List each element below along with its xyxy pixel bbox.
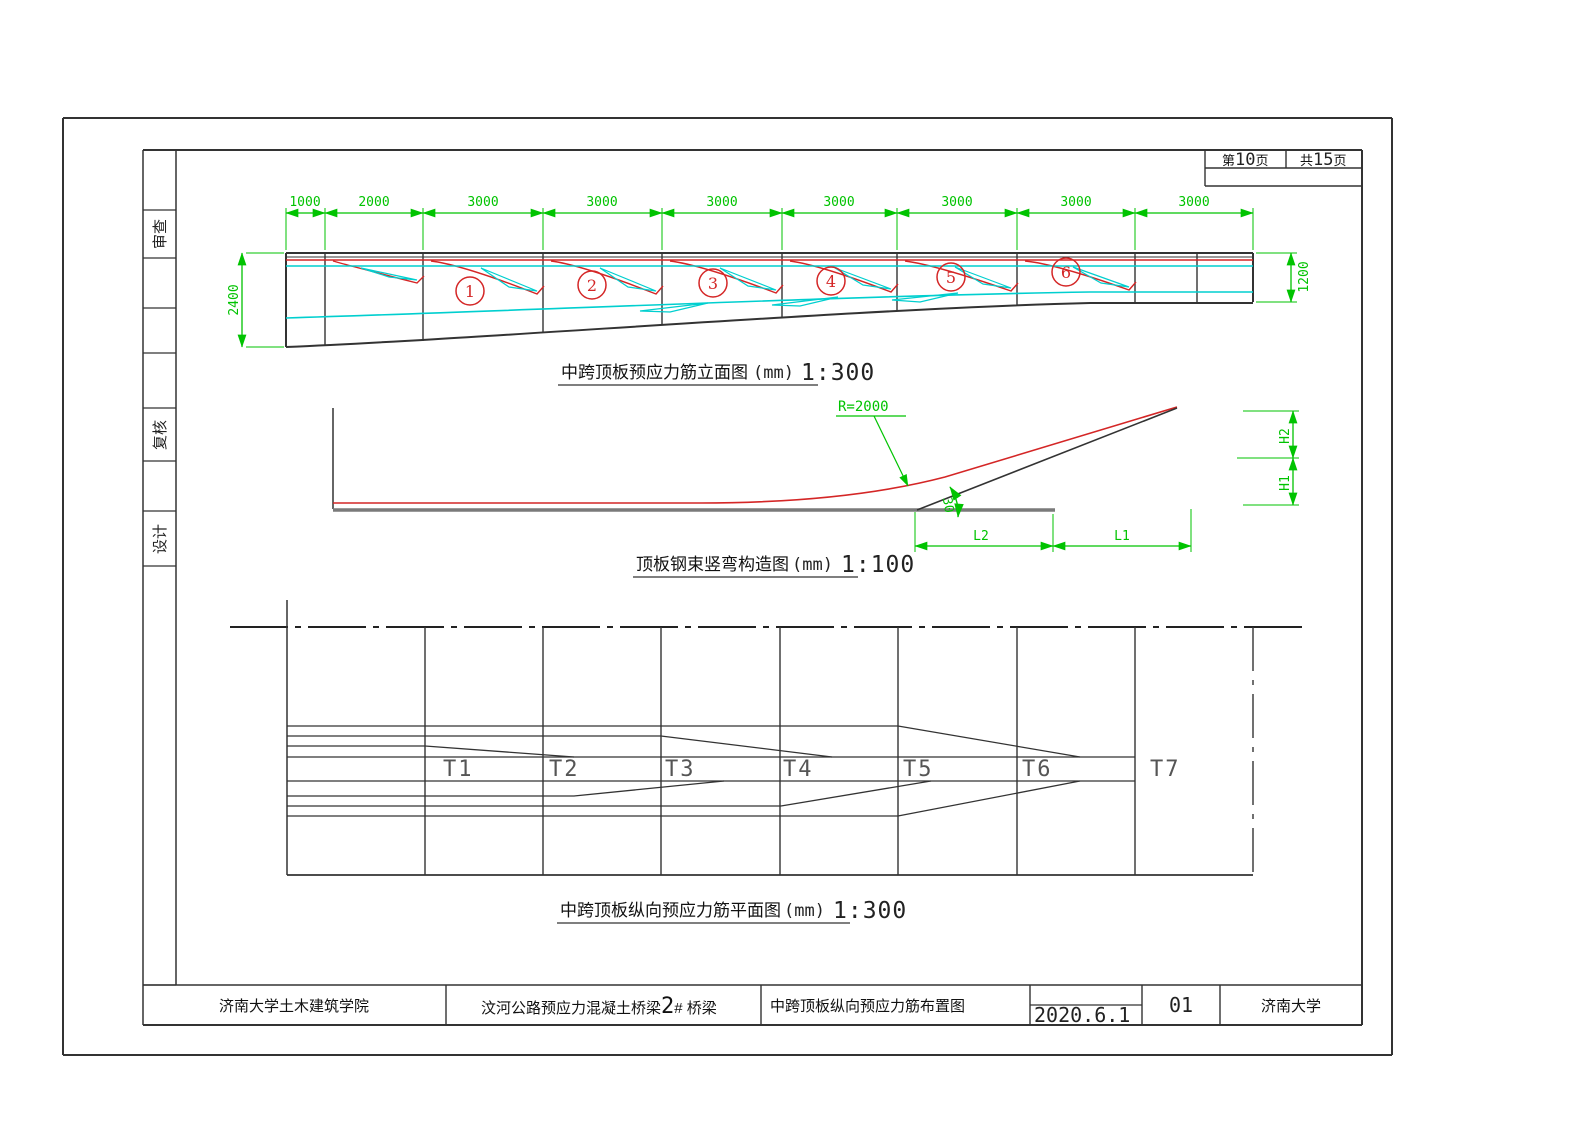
tendon-label-t2: T2	[549, 757, 580, 782]
caption-unit: (mm)	[792, 555, 833, 575]
dim-label: 3000	[706, 195, 737, 210]
dim-label: 1000	[289, 195, 320, 210]
tangent-line	[917, 408, 1177, 510]
dim-label-l1: L1	[1114, 529, 1130, 544]
caption-text: 顶板钢束竖弯构造图	[636, 555, 789, 574]
dim-label: 3000	[941, 195, 972, 210]
caption-scale: 1:300	[833, 898, 907, 924]
page-number: 第10页	[1222, 150, 1269, 170]
sheet-number: 01	[1169, 993, 1193, 1017]
cad-sheet: 审查 复核 设计 第10页 共15页	[0, 0, 1588, 1122]
svg-text:2: 2	[587, 276, 597, 295]
caption-scale: 1:100	[841, 552, 915, 578]
plan-caption: 中跨顶板纵向预应力筋平面图 (mm) 1:300	[557, 898, 907, 924]
svg-text:5: 5	[946, 268, 956, 287]
dim-label: 3000	[1178, 195, 1209, 210]
dim-label-l2: L2	[973, 529, 989, 544]
tendon-label-t5: T5	[903, 757, 934, 782]
tendon-number-1: 1	[456, 277, 484, 305]
tendon-number-callouts: 1 2 3 4 5 6	[456, 258, 1080, 305]
plan-tendon-lines	[287, 726, 1135, 816]
caption-text: 中跨顶板纵向预应力筋平面图	[560, 901, 781, 920]
h-dimensions: H2 H1	[1237, 411, 1299, 505]
date-value: 2020.6.1	[1034, 1003, 1130, 1027]
tendon-label-t4: T4	[783, 757, 814, 782]
project-name: 汶河公路预应力混凝土桥梁2# 桥梁	[481, 994, 717, 1019]
tendon-number-2: 2	[578, 271, 606, 299]
signature-strip: 审查 复核 设计	[143, 150, 176, 985]
caption-scale: 1:300	[801, 360, 875, 386]
side-label-design: 设计	[152, 524, 169, 554]
tendon-label-t6: T6	[1022, 757, 1053, 782]
drawing-canvas: 审查 复核 设计 第10页 共15页	[0, 0, 1588, 1122]
caption-unit: (mm)	[753, 363, 794, 383]
beam-outline	[286, 253, 1253, 347]
angle-label: 30	[939, 496, 956, 514]
elevation-dim-left: 2400	[227, 253, 284, 347]
l-dimensions: L2 L1	[915, 509, 1191, 552]
tendon-label-t3: T3	[665, 757, 696, 782]
dim-label-height-right: 1200	[1297, 261, 1312, 292]
caption-unit: (mm)	[784, 901, 825, 921]
organization-name: 济南大学土木建筑学院	[219, 997, 369, 1015]
dim-label: 3000	[823, 195, 854, 210]
university-name: 济南大学	[1261, 998, 1321, 1015]
total-pages: 共15页	[1300, 150, 1347, 170]
plan-view: T1 T2 T3 T4 T5 T6 T7 中跨顶板纵向预应力筋平面图 (mm) …	[230, 600, 1308, 924]
dim-label-h2: H2	[1278, 428, 1293, 444]
elevation-dim-right: 1200	[1256, 253, 1312, 302]
svg-text:6: 6	[1061, 263, 1071, 282]
bend-detail-view: 30 R=2000 H2 H1 L2 L1 顶板钢束竖弯构造图 (mm)	[333, 399, 1299, 578]
radius-label: R=2000	[838, 399, 889, 415]
dim-label: 2000	[358, 195, 389, 210]
dim-label-height-left: 2400	[227, 284, 242, 315]
page-number-block: 第10页 共15页	[1205, 150, 1362, 186]
tendon-label-t1: T1	[443, 757, 474, 782]
svg-text:1: 1	[465, 282, 475, 301]
title-block: 济南大学土木建筑学院 汶河公路预应力混凝土桥梁2# 桥梁 中跨顶板纵向预应力筋布…	[143, 985, 1362, 1027]
elevation-caption: 中跨顶板预应力筋立面图 (mm) 1:300	[558, 360, 875, 386]
tendon-profile-red	[333, 407, 1177, 503]
tendon-number-3: 3	[699, 269, 727, 297]
dim-label: 3000	[467, 195, 498, 210]
dim-label: 3000	[1060, 195, 1091, 210]
svg-text:4: 4	[826, 272, 836, 291]
elevation-view: 1000 2000 3000 3000 3000 3000 3000 3000 …	[227, 195, 1312, 386]
svg-text:3: 3	[708, 274, 718, 293]
plan-tendon-labels: T1 T2 T3 T4 T5 T6 T7	[443, 757, 1181, 782]
bend-detail-caption: 顶板钢束竖弯构造图 (mm) 1:100	[633, 552, 915, 578]
dim-label: 3000	[586, 195, 617, 210]
dim-label-h1: H1	[1278, 475, 1293, 491]
tendon-number-4: 4	[817, 267, 845, 295]
side-label-check: 复核	[151, 420, 169, 450]
tendon-number-5: 5	[937, 263, 965, 291]
drawing-title: 中跨顶板纵向预应力筋布置图	[770, 997, 965, 1015]
cyan-ducts	[286, 266, 1253, 318]
tendon-label-t7: T7	[1150, 757, 1181, 782]
caption-text: 中跨顶板预应力筋立面图	[561, 363, 748, 382]
elevation-dim-chain: 1000 2000 3000 3000 3000 3000 3000 3000 …	[286, 195, 1253, 250]
radius-callout: R=2000	[836, 399, 908, 486]
side-label-review: 审查	[152, 219, 169, 249]
